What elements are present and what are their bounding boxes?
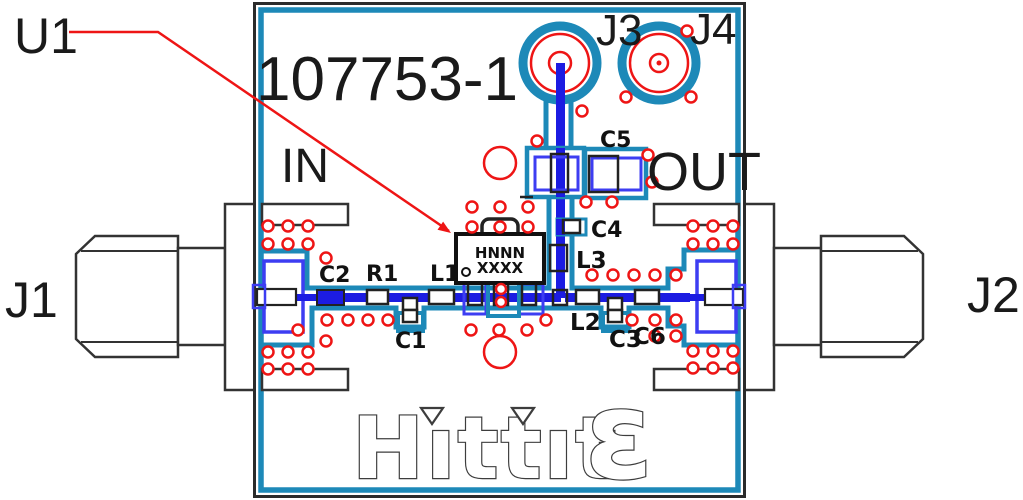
c3-body-top	[608, 298, 622, 310]
via	[708, 239, 719, 250]
via	[688, 239, 699, 250]
silkscreen-in: IN	[281, 140, 329, 193]
hittite-logo-word: Hıttıt	[352, 399, 618, 499]
via	[467, 202, 478, 213]
j2-neck	[774, 248, 821, 345]
via	[688, 363, 699, 374]
via	[263, 364, 274, 375]
refdes-c5: C5	[600, 128, 631, 153]
connector-j2-body	[741, 204, 923, 390]
j1-center-pin	[257, 289, 296, 305]
j1-neck	[178, 248, 225, 345]
via	[495, 222, 506, 233]
via	[303, 347, 314, 358]
u1-pin1-dot	[462, 268, 470, 276]
via	[303, 364, 314, 375]
u1-marking-line2: XXXX	[477, 259, 524, 277]
j1-nut	[76, 236, 178, 357]
via	[728, 221, 739, 232]
via	[608, 270, 619, 281]
via	[283, 364, 294, 375]
component-r1	[367, 290, 388, 304]
component-c4-group	[556, 219, 586, 235]
via	[321, 253, 332, 264]
via	[688, 346, 699, 357]
pcb-layout-svg: HNNN XXXX 107753-1 IN OUT C2 R1 L1 C1 C4…	[0, 0, 1023, 500]
refdes-c4: C4	[591, 218, 622, 243]
via	[321, 336, 332, 347]
via	[283, 221, 294, 232]
via	[541, 315, 552, 326]
via	[607, 197, 618, 208]
via	[263, 239, 274, 250]
via	[495, 202, 506, 213]
refdes-l2: L2	[570, 310, 601, 336]
via	[496, 284, 506, 294]
component-l2	[576, 290, 599, 304]
c1-body-top	[403, 298, 417, 310]
via	[629, 270, 640, 281]
refdes-l3: L3	[576, 248, 607, 274]
via	[522, 325, 533, 336]
part-number: 107753-1	[256, 45, 518, 114]
via	[303, 239, 314, 250]
via	[496, 297, 506, 307]
refdes-r1: R1	[366, 262, 398, 287]
via	[363, 315, 374, 326]
via	[728, 239, 739, 250]
via	[523, 222, 534, 233]
via	[621, 92, 632, 103]
via	[303, 221, 314, 232]
j2-center-pin	[705, 289, 743, 305]
pcb-layout-drawing: HNNN XXXX 107753-1 IN OUT C2 R1 L1 C1 C4…	[0, 0, 1023, 500]
via	[581, 197, 592, 208]
via	[494, 325, 505, 336]
label-u1: U1	[14, 8, 78, 64]
via	[671, 315, 682, 326]
via	[686, 92, 697, 103]
via	[343, 315, 354, 326]
via	[671, 331, 682, 342]
via	[293, 325, 304, 336]
via	[283, 347, 294, 358]
via	[523, 202, 534, 213]
label-j3: J3	[596, 6, 642, 55]
via	[466, 325, 477, 336]
via	[577, 106, 588, 117]
silkscreen-out: OUT	[647, 142, 761, 202]
via	[383, 315, 394, 326]
bias-choke-pads	[520, 148, 646, 198]
via	[708, 221, 719, 232]
via	[467, 222, 478, 233]
connector-j1-body	[76, 204, 258, 390]
component-l1	[429, 290, 454, 304]
label-j1: J1	[5, 272, 58, 328]
refdes-l1: L1	[430, 262, 459, 287]
via	[708, 346, 719, 357]
refdes-c6: C6	[633, 324, 666, 350]
j4-center-dot	[657, 61, 662, 66]
via	[322, 315, 333, 326]
trace-c2-r1	[344, 293, 369, 302]
component-c2	[317, 290, 344, 305]
via	[671, 270, 682, 281]
c3-body-bottom	[608, 310, 622, 322]
via	[728, 346, 739, 357]
via	[532, 136, 543, 147]
via	[263, 221, 274, 232]
hittite-logo-epsilon: ε	[585, 365, 653, 500]
label-j4: J4	[690, 5, 736, 54]
via	[688, 221, 699, 232]
via	[728, 363, 739, 374]
trace-j2-stub	[690, 294, 706, 301]
refdes-c2: C2	[319, 263, 350, 288]
via	[263, 347, 274, 358]
c1-body-bottom	[403, 310, 417, 322]
j2-nut	[821, 236, 923, 357]
via	[283, 239, 294, 250]
via	[708, 363, 719, 374]
refdes-c1: C1	[395, 329, 426, 354]
label-j2: J2	[967, 267, 1020, 323]
component-c6	[635, 290, 659, 304]
via	[650, 270, 661, 281]
